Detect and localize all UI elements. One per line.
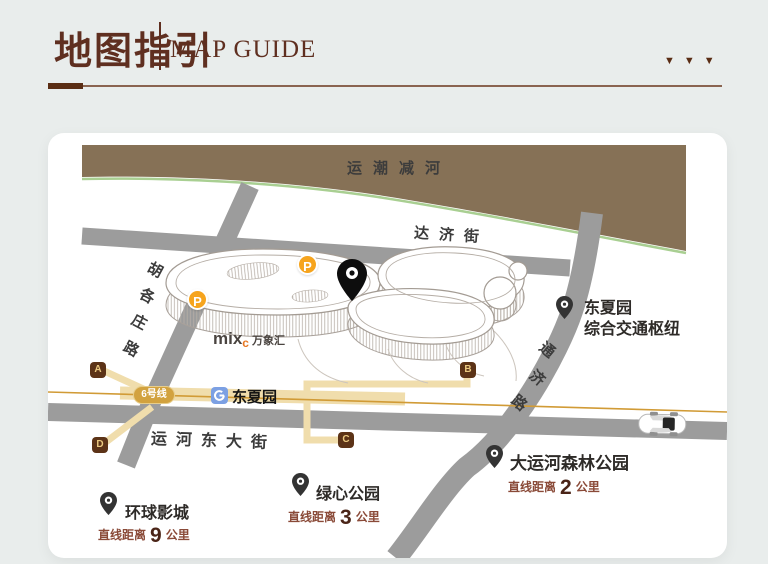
poi-green-name: 绿心公园 [316, 480, 380, 504]
poi-universal-distance: 直线距离9公里 [98, 524, 190, 548]
street-label-daji: 达济街 [413, 222, 489, 248]
mixc-logo-name: 万象汇 [252, 335, 285, 347]
distance-unit: 公里 [356, 510, 380, 524]
parking-icon: P [187, 289, 208, 310]
poi-hub-label: 东夏园 综合交通枢纽 [584, 298, 680, 340]
mixc-logo-c: c [242, 336, 249, 350]
distance-prefix: 直线距离 [508, 480, 556, 494]
metro-logo-icon [211, 387, 228, 409]
metro-exit-a: A [90, 362, 106, 378]
metro-exit-d: D [92, 437, 108, 453]
poi-green-distance: 直线距离3公里 [288, 506, 380, 530]
parking-icon: P [297, 254, 318, 275]
poi-forest-distance: 直线距离2公里 [508, 476, 600, 500]
destination-pin-icon [337, 259, 367, 306]
map-canvas: 运潮减河 达济街 运河东大街 胡 各 庄 路 通 济 路 6号线 东夏园 A B… [48, 133, 727, 558]
page-title-en: MAP GUIDE [170, 36, 316, 64]
poi-pin-hub-icon [556, 296, 573, 324]
metro-station-label: 东夏园 [232, 386, 277, 407]
distance-unit: 公里 [166, 528, 190, 542]
distance-prefix: 直线距离 [288, 510, 336, 524]
distance-value: 2 [560, 476, 572, 499]
poi-hub-name: 东夏园 [584, 298, 680, 319]
distance-prefix: 直线距离 [98, 528, 146, 542]
poi-forest-name: 大运河森林公园 [510, 449, 629, 474]
poi-pin-universal-icon [100, 492, 117, 520]
triangle-deco-icon: ▼▼▼ [664, 55, 724, 67]
poi-universal-name: 环球影城 [125, 499, 189, 523]
map-graphics [48, 133, 727, 558]
car-icon [639, 412, 686, 437]
poi-pin-forest-icon [486, 445, 503, 473]
metro-exit-b: B [460, 362, 476, 378]
header-rule-accent [48, 83, 83, 89]
mixc-logo: mixc万象汇 [213, 329, 285, 349]
street-label-yunhe: 运河东大街 [151, 425, 277, 453]
distance-value: 9 [150, 524, 162, 547]
page: { "header": { "title_zh": "地图指引", "title… [0, 0, 768, 564]
distance-unit: 公里 [576, 480, 600, 494]
mixc-logo-mix: mix [213, 329, 242, 348]
poi-pin-green-icon [292, 473, 309, 501]
metro-exit-c: C [338, 432, 354, 448]
distance-value: 3 [340, 506, 352, 529]
river-label: 运潮减河 [314, 157, 484, 178]
poi-hub-name2: 综合交通枢纽 [584, 319, 680, 340]
header-rule [48, 85, 722, 87]
metro-line6-badge: 6号线 [133, 386, 175, 404]
title-divider [159, 22, 161, 70]
